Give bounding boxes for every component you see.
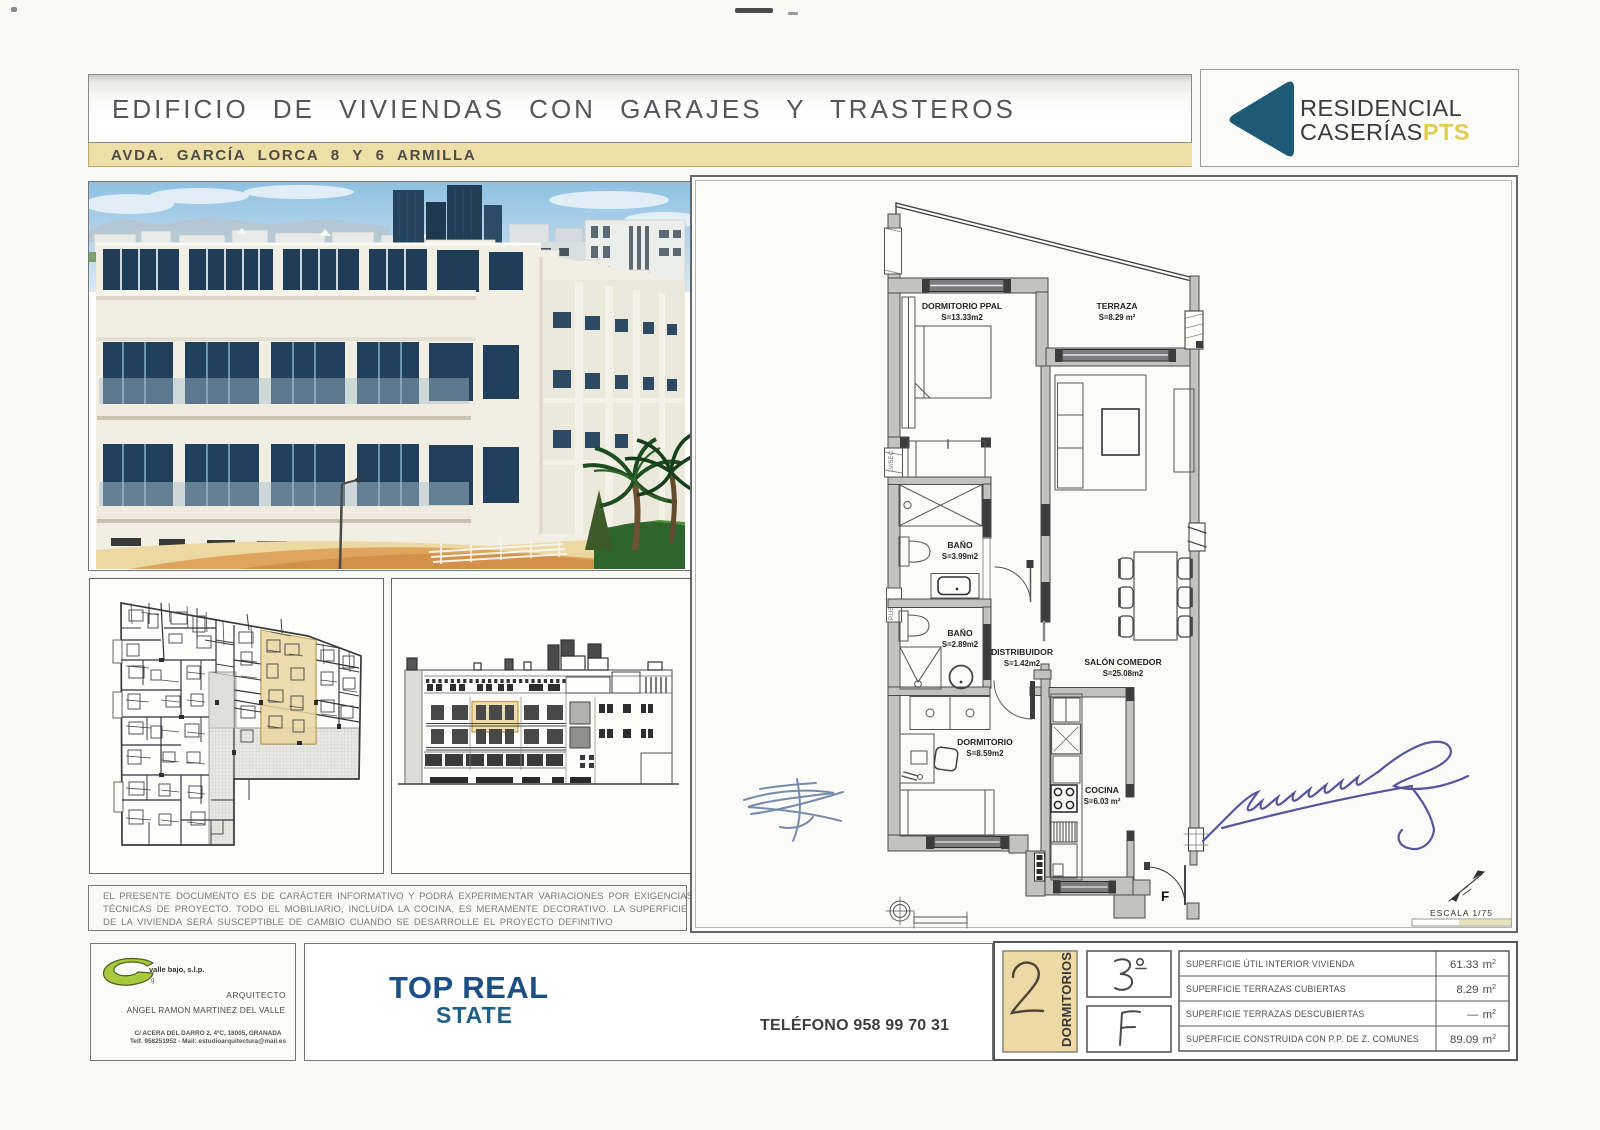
svg-text:S=6.03 m²: S=6.03 m² [1084, 797, 1121, 806]
svg-text:ANGEL RAMON MARTINEZ DEL VALLE: ANGEL RAMON MARTINEZ DEL VALLE [127, 1005, 286, 1015]
svg-text:DORMITORIOS: DORMITORIOS [1059, 952, 1074, 1047]
svg-text:S=3.99m2: S=3.99m2 [942, 552, 979, 561]
svg-text:S=2.89m2: S=2.89m2 [942, 640, 979, 649]
svg-text:SUPERFICIE CONSTRUIDA CON P.P.: SUPERFICIE CONSTRUIDA CON P.P. DE Z. COM… [1186, 1034, 1419, 1044]
svg-text:S=1.42m2: S=1.42m2 [1004, 659, 1041, 668]
svg-text:CASERÍASPTS: CASERÍASPTS [1300, 119, 1470, 145]
svg-text:DISTRIBUIDOR: DISTRIBUIDOR [991, 647, 1054, 657]
svg-text:S=8.59m2: S=8.59m2 [966, 749, 1004, 758]
svg-text:valle bajo, s.l.p.: valle bajo, s.l.p. [149, 965, 204, 974]
svg-text:89.09 m2: 89.09 m2 [1450, 1034, 1496, 1046]
svg-text:SUPERFICIE ÚTIL INTERIOR VIVIE: SUPERFICIE ÚTIL INTERIOR VIVIENDA [1186, 959, 1355, 969]
svg-text:COCINA: COCINA [1085, 785, 1119, 795]
svg-text:TERRAZA: TERRAZA [1096, 301, 1137, 311]
svg-text:— m2: — m2 [1467, 1009, 1496, 1021]
svg-text:BAÑO: BAÑO [947, 628, 973, 638]
svg-text:C/ ACERA DEL DARRO 2, 4ºC, 180: C/ ACERA DEL DARRO 2, 4ºC, 18005, GRANAD… [135, 1030, 282, 1037]
svg-text:ESCALA 1/75: ESCALA 1/75 [1430, 908, 1493, 918]
svg-text:S=13.33m2: S=13.33m2 [941, 313, 983, 322]
svg-text:DORMITORIO: DORMITORIO [957, 737, 1013, 747]
svg-text:BAÑO: BAÑO [947, 540, 973, 550]
svg-text:SUPERFICIE TERRAZAS DESCUBIERT: SUPERFICIE TERRAZAS DESCUBIERTAS [1186, 1009, 1364, 1019]
svg-text:SUPERFICIE TERRAZAS CUBIERTAS: SUPERFICIE TERRAZAS CUBIERTAS [1186, 984, 1346, 994]
svg-text:g: g [151, 978, 154, 984]
svg-text:Telf. 958251952 - Mail: estudi: Telf. 958251952 - Mail: estudioarquitect… [130, 1038, 286, 1045]
svg-text:F: F [1161, 889, 1169, 904]
svg-text:S=25.08m2: S=25.08m2 [1103, 669, 1144, 678]
svg-text:LV/SEC: LV/SEC [889, 450, 895, 472]
svg-text:8.29 m2: 8.29 m2 [1456, 984, 1496, 996]
svg-text:ARQUITECTO: ARQUITECTO [226, 990, 286, 1000]
svg-text:61.33 m2: 61.33 m2 [1450, 959, 1496, 971]
svg-text:SALÓN COMEDOR: SALÓN COMEDOR [1084, 656, 1162, 667]
svg-text:RESIDENCIAL: RESIDENCIAL [1300, 95, 1462, 121]
svg-text:S=8.29 m²: S=8.29 m² [1099, 313, 1136, 322]
svg-text:DORMITORIO PPAL: DORMITORIO PPAL [922, 301, 1002, 311]
